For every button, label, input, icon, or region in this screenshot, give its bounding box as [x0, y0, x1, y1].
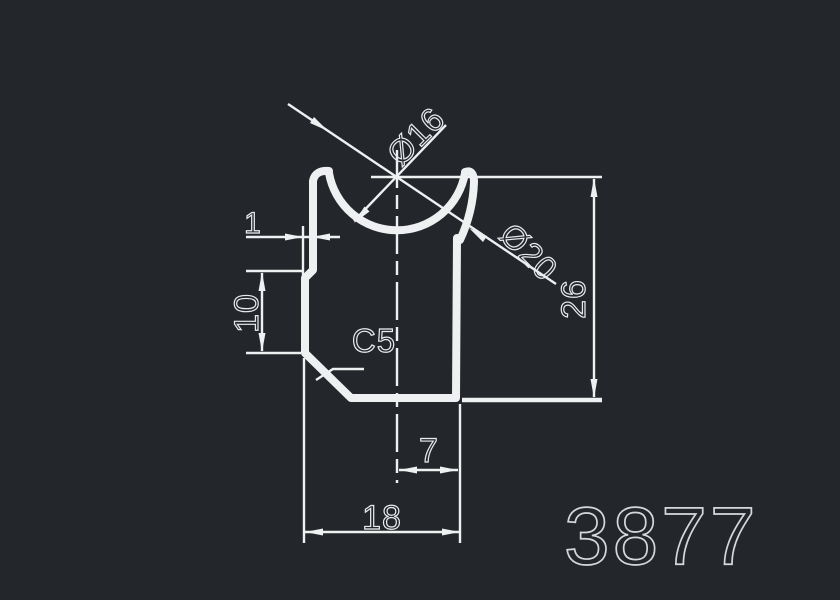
- dim-label-dia-outer: Ø20: [493, 216, 565, 288]
- arrowhead-10-bottom: [259, 333, 266, 352]
- arrowhead-18-right: [442, 529, 460, 536]
- arrowhead-7-left: [399, 467, 417, 474]
- arrowhead-26-bottom: [591, 379, 598, 398]
- dim-label-overall-height: 26: [555, 279, 593, 319]
- arrowhead-dia20-nw: [310, 117, 328, 131]
- dim-label-overall-width: 18: [362, 499, 402, 537]
- dim-label-chamfer: C5: [352, 322, 396, 359]
- dim-label-left-height: 10: [228, 293, 266, 333]
- arrowhead-1-left: [285, 234, 303, 241]
- drawing-canvas[interactable]: 1 10 26 Ø16 Ø20 C5 7 18 3877: [0, 0, 840, 600]
- dim-label-half-width: 7: [419, 432, 439, 470]
- part-number: 3877: [564, 491, 758, 582]
- arrowhead-7-right: [440, 467, 458, 474]
- cad-drawing: 1 10 26 Ø16 Ø20 C5 7 18 3877: [0, 0, 840, 600]
- dim-label-step: 1: [244, 207, 262, 240]
- arrowhead-10-top: [259, 272, 266, 291]
- profile-outline: [305, 171, 457, 398]
- arrowhead-26-top: [591, 178, 598, 197]
- arrowhead-dia20-se: [469, 228, 487, 242]
- arrowhead-18-left: [305, 529, 323, 536]
- dim-label-dia-inner: Ø16: [380, 100, 452, 172]
